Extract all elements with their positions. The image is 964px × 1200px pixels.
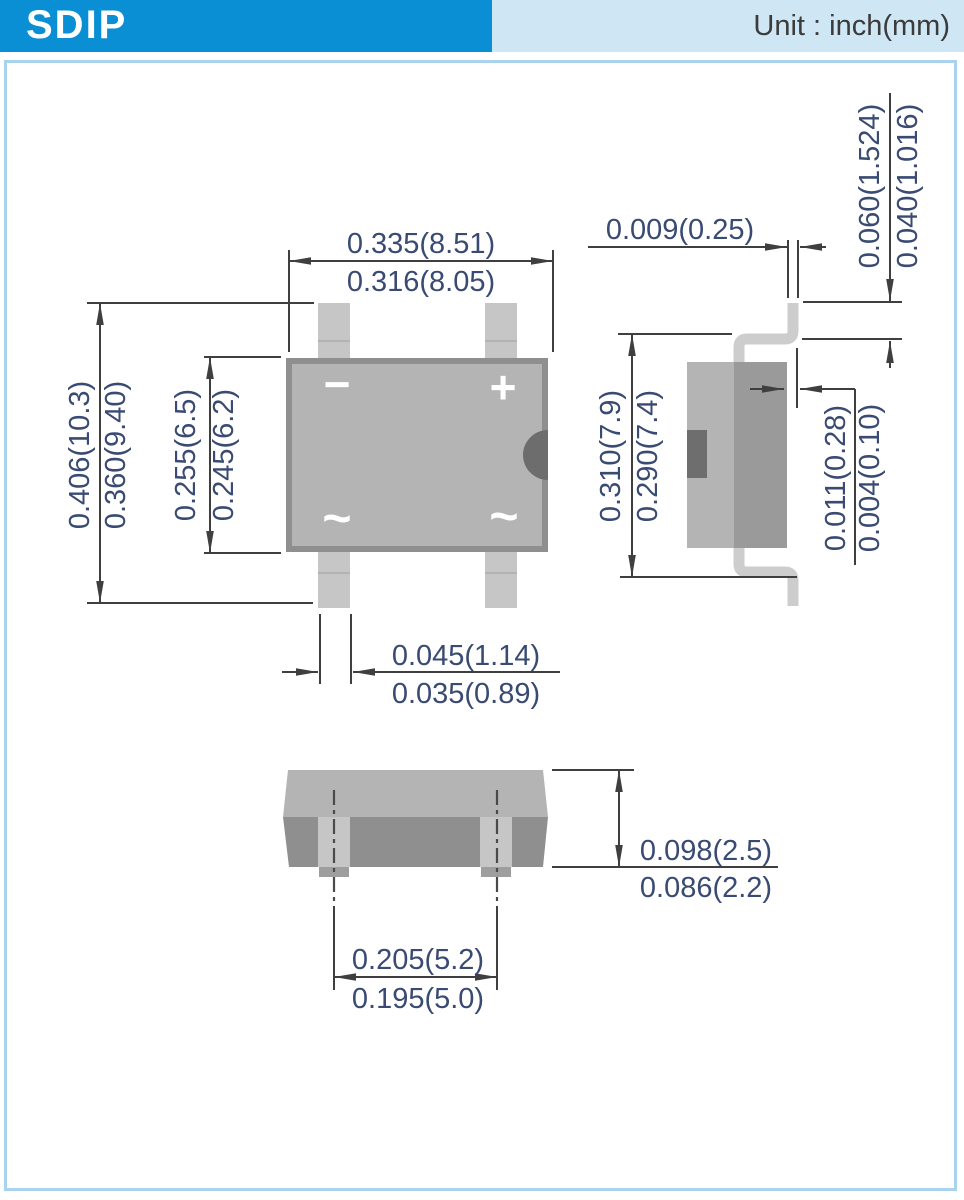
dimension-value: 0.195(5.0) [352,983,484,1015]
dimension-value: 0.009(0.25) [606,214,754,246]
pin-pitch-dimension: 0.205(5.2) 0.195(5.0) [334,906,497,1015]
end-view: 0.098(2.5) 0.086(2.2) 0.205(5.2) 0.195(5… [283,770,778,1015]
dimension-value: 0.406(10.3) [64,381,96,529]
front-pin-bottom-left [318,552,350,608]
dimension-value: 0.205(5.2) [352,944,484,976]
side-lead-top [739,303,793,368]
end-top-face [283,770,548,817]
front-view: − + ~ ~ 0.335(8.51) 0.316(8.05) 0.406(10… [64,228,560,710]
dimension-value: 0.060(1.524) [854,104,886,268]
plus-marking: + [490,361,517,413]
lead-top-length-dimension: 0.060(1.524) 0.040(1.016) [802,93,924,368]
side-lead-bottom [739,542,793,606]
dimension-value: 0.245(6.2) [208,389,240,521]
front-pin-top-right [485,303,517,358]
dimension-value: 0.045(1.14) [392,640,540,672]
ac-marking-right: ~ [489,488,518,544]
minus-marking: − [324,358,351,410]
dimension-value: 0.011(0.28) [820,405,852,551]
side-view: 0.009(0.25) 0.060(1.524) 0.040(1.016) [588,93,924,606]
dimension-value: 0.098(2.5) [640,835,772,867]
ac-marking-left: ~ [322,490,351,546]
dimension-value: 0.360(9.40) [100,381,132,529]
dimension-value: 0.290(7.4) [632,390,664,522]
front-pin-top-left [318,303,350,358]
dimension-value: 0.086(2.2) [640,872,772,904]
pin-width-dimension: 0.045(1.14) 0.035(0.89) [282,614,560,710]
seated-height-dimension: 0.098(2.5) 0.086(2.2) [552,770,778,904]
package-outline-page: SDIP Unit : inch(mm) [0,0,964,1200]
dimension-value: 0.335(8.51) [347,228,495,260]
dimension-value: 0.004(0.10) [854,404,886,552]
technical-drawing: − + ~ ~ 0.335(8.51) 0.316(8.05) 0.406(10… [0,0,964,1200]
dimension-value: 0.040(1.016) [892,104,924,268]
dimension-value: 0.035(0.89) [392,678,540,710]
front-body-height-dimension: 0.255(6.5) 0.245(6.2) [170,357,281,553]
side-body-recess [687,430,707,478]
dimension-value: 0.255(6.5) [170,389,202,521]
dimension-value: 0.316(8.05) [347,266,495,298]
front-pin-bottom-right [485,552,517,608]
lead-thickness-dimension: 0.009(0.25) [588,214,826,298]
dimension-value: 0.310(7.9) [595,390,627,522]
